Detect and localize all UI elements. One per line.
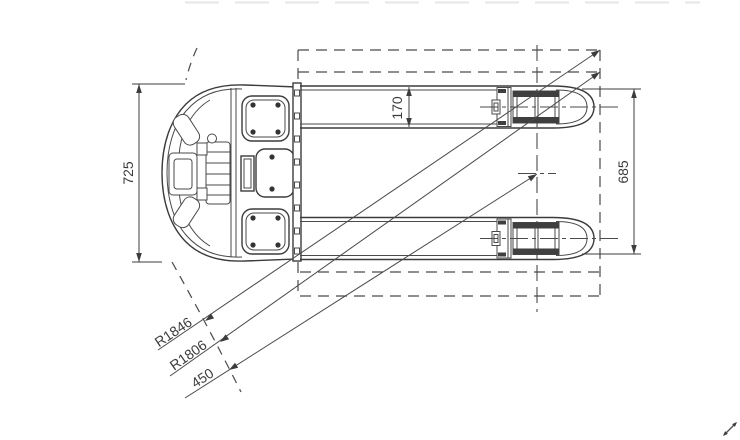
fork-carriage (293, 83, 301, 261)
label-offset-450: 450 (188, 365, 216, 391)
cover-pad-bottom (242, 209, 289, 254)
fork-top (300, 86, 618, 128)
label-dim-725: 725 (120, 161, 136, 185)
drawing-page: R1846 R1806 450 725 170 685 (0, 0, 740, 440)
tiller-link-lower (197, 188, 207, 200)
drive-unit-body (162, 83, 301, 261)
drawing-canvas: R1846 R1806 450 725 170 685 (0, 0, 740, 440)
resize-handle[interactable] (723, 422, 737, 436)
label-dim-170: 170 (389, 96, 405, 120)
cover-pad-top (242, 96, 289, 141)
handle-recess (241, 156, 254, 191)
pivot-pin (208, 134, 217, 143)
tiller-link-upper (197, 143, 207, 155)
label-dim-685: 685 (615, 160, 631, 184)
dimension-170: 170 (389, 87, 412, 127)
swept-arc-top (186, 48, 197, 80)
cover-pad-middle (256, 149, 294, 197)
